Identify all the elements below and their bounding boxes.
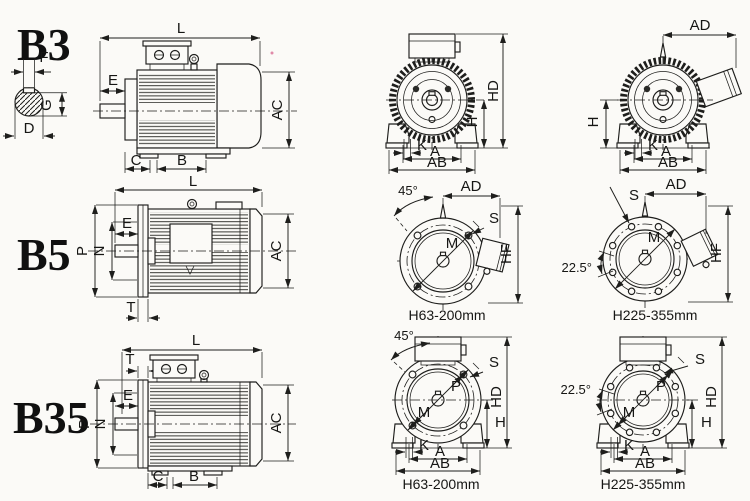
dim-label-C: C	[153, 468, 164, 485]
b5-side-view: L P N E	[74, 173, 296, 322]
dim-label-H: H	[701, 414, 712, 431]
dim-label-22-5deg: 22.5°	[560, 382, 591, 397]
eye-bolt	[190, 55, 199, 64]
eye-bolt	[188, 200, 197, 209]
b5-row: B5 L P	[17, 173, 733, 323]
dim-label-S: S	[489, 210, 499, 227]
dim-label-B: B	[177, 152, 187, 169]
dim-label-AC: AC	[268, 240, 285, 261]
b3-side-view: L E AC	[93, 20, 297, 173]
dim-label-AB: AB	[658, 154, 678, 171]
dim-label-H: H	[585, 117, 602, 128]
dim-label-M: M	[446, 235, 459, 252]
eye-bolt	[200, 371, 209, 380]
dim-label-S: S	[695, 351, 705, 368]
frame-range-caption: H225-355mm	[601, 476, 686, 492]
dim-label-HF: HF	[498, 244, 515, 264]
terminal-box	[153, 360, 195, 378]
dim-label-L: L	[177, 20, 185, 37]
dim-label-K: K	[417, 137, 427, 154]
dim-label-45deg: 45°	[394, 328, 414, 343]
motor-mounting-diagram-page: B3 F G D L	[0, 0, 750, 501]
dim-label-M: M	[418, 404, 431, 421]
dim-label-AB: AB	[635, 455, 655, 472]
mount-code-b35: B35	[13, 392, 90, 443]
dim-label-M: M	[623, 404, 636, 421]
dim-label-F: F	[39, 49, 48, 66]
dim-label-AC: AC	[269, 99, 286, 120]
dim-label-AD: AD	[666, 176, 687, 193]
mount-code-b5: B5	[17, 229, 71, 280]
dim-label-D: D	[24, 120, 35, 137]
dim-label-P: P	[74, 246, 91, 256]
dim-label-AB: AB	[430, 455, 450, 472]
frame-range-caption: H63-200mm	[402, 476, 479, 492]
dim-label-HD: HD	[488, 386, 505, 408]
b3-front-view-foot: HD H K A AB	[386, 34, 508, 174]
b35-front-view-small: 45° S P M HD H K A	[391, 328, 512, 492]
dim-label-S: S	[629, 187, 639, 204]
dim-label-M: M	[648, 229, 661, 246]
dim-label-L: L	[189, 173, 197, 190]
dim-label-K: K	[624, 437, 634, 454]
b35-front-view-large: S 22.5° P M HD H K A	[560, 336, 727, 492]
terminal-box	[146, 46, 188, 64]
b3-row: B3 F G D L	[3, 17, 741, 174]
dim-label-N: N	[91, 246, 108, 257]
dim-label-H: H	[464, 117, 481, 128]
dim-label-E: E	[108, 72, 118, 89]
b35-row: B35 L T	[13, 328, 727, 492]
dim-label-H: H	[495, 414, 506, 431]
nameplate-panel	[170, 224, 212, 263]
dim-label-B: B	[189, 468, 199, 485]
dim-label-S: S	[489, 354, 499, 371]
dim-label-45deg: 45°	[398, 183, 418, 198]
dim-label-AC: AC	[268, 412, 285, 433]
dim-label-L: L	[192, 332, 200, 349]
frame-range-caption: H225-355mm	[613, 307, 698, 323]
b35-side-view: L T	[76, 332, 296, 489]
dim-label-P: P	[451, 378, 461, 395]
dim-label-E: E	[122, 215, 132, 232]
dim-label-T: T	[125, 351, 134, 368]
dim-label-T: T	[126, 299, 135, 316]
motor-mounting-diagram: B3 F G D L	[0, 0, 750, 501]
scan-artifact-dot	[271, 52, 274, 55]
dim-label-HD: HD	[703, 386, 720, 408]
b5-flange-view-small: 45° AD S M HF H63-200mm	[394, 178, 523, 323]
dim-label-HF: HF	[708, 243, 725, 263]
dim-label-AD: AD	[461, 178, 482, 195]
dim-label-K: K	[648, 137, 658, 154]
dim-label-E: E	[123, 387, 133, 404]
dim-label-AD: AD	[690, 17, 711, 34]
dim-label-N: N	[92, 419, 109, 430]
dim-label-22-5deg: 22.5°	[561, 260, 592, 275]
dim-label-P: P	[656, 378, 666, 395]
terminal-box-side	[696, 68, 741, 106]
b5-flange-view-large: AD S 22.5° M HF H225-355mm	[561, 176, 733, 323]
dim-label-P: P	[76, 419, 93, 429]
dim-label-AB: AB	[427, 154, 447, 171]
dim-label-HD: HD	[485, 80, 502, 102]
dim-label-C: C	[131, 152, 142, 169]
dim-label-K: K	[419, 437, 429, 454]
frame-range-caption: H63-200mm	[408, 307, 485, 323]
dim-label-G: G	[38, 99, 55, 111]
b3-front-view-side-box: AD H K A AB	[585, 17, 741, 174]
